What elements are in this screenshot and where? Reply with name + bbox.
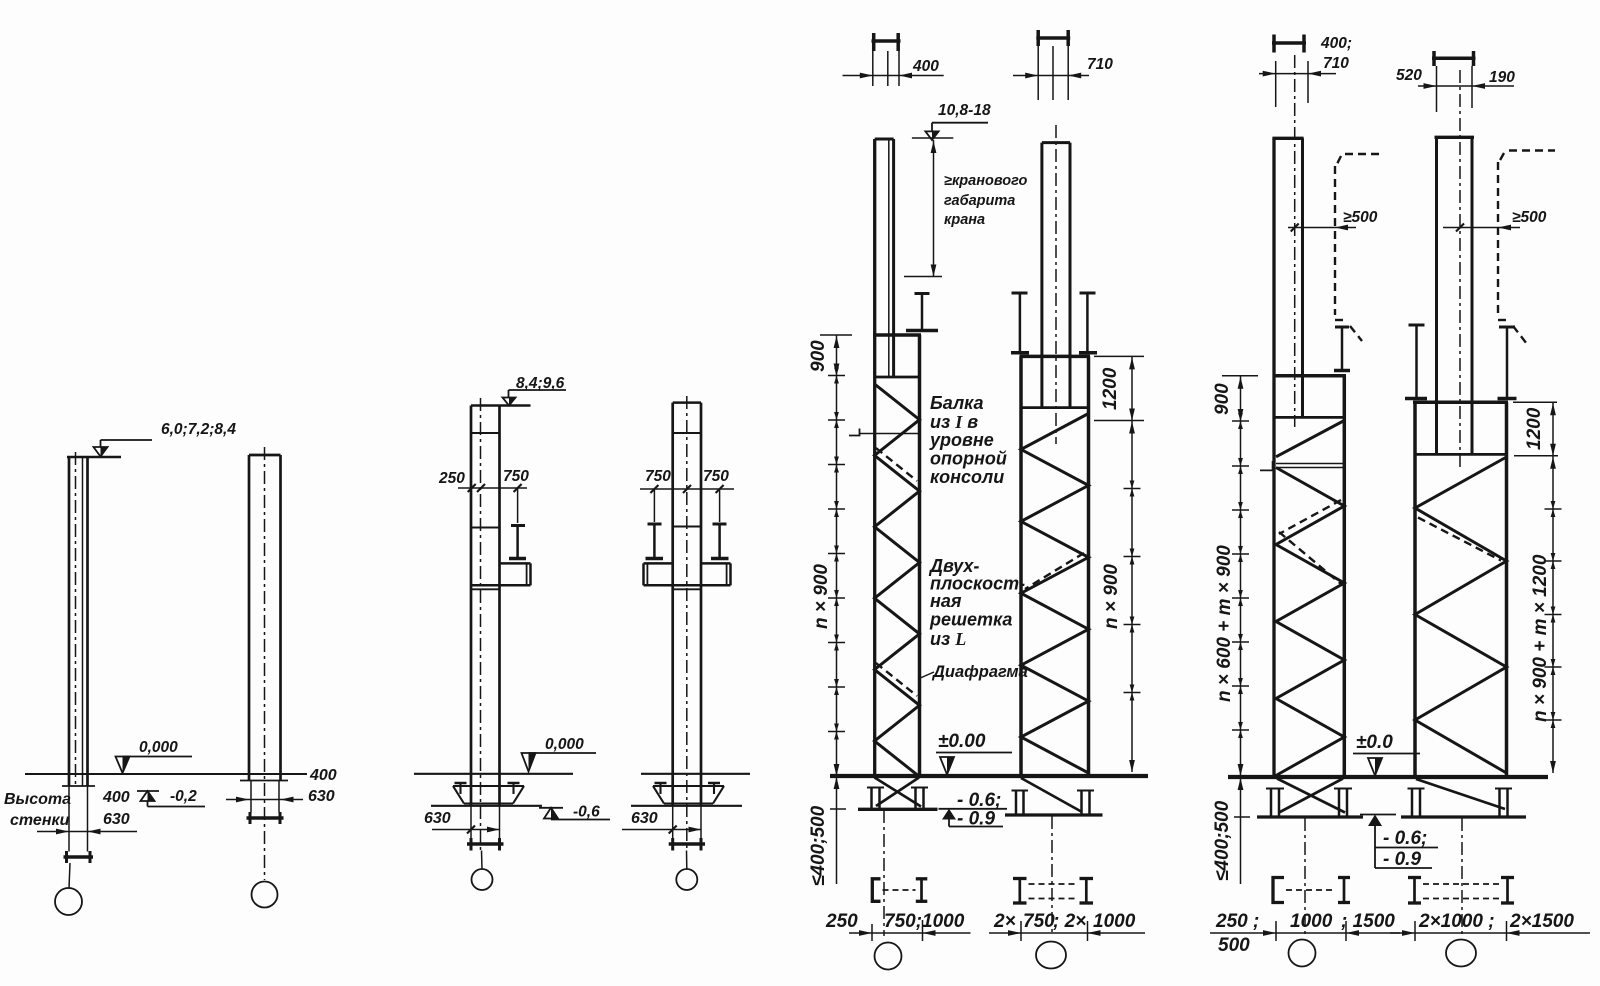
svg-text:≥500: ≥500 bbox=[1512, 209, 1547, 226]
svg-text:n × 900: n × 900 bbox=[1101, 564, 1122, 629]
svg-text:ная: ная bbox=[930, 591, 962, 611]
svg-text:750: 750 bbox=[1023, 911, 1055, 932]
svg-text:1000: 1000 bbox=[1290, 911, 1333, 932]
svg-text:250: 250 bbox=[825, 911, 858, 932]
svg-text:710: 710 bbox=[1087, 56, 1113, 73]
svg-text:из I в: из I в bbox=[930, 412, 978, 432]
svg-text:630: 630 bbox=[308, 788, 335, 805]
svg-text:из L: из L bbox=[930, 629, 966, 649]
svg-text:±0.00: ±0.00 bbox=[938, 731, 986, 752]
svg-text:Диафрагма: Диафрагма bbox=[931, 663, 1028, 681]
svg-text:400: 400 bbox=[309, 767, 337, 784]
svg-text:0,000: 0,000 bbox=[139, 739, 178, 756]
svg-text:750: 750 bbox=[503, 468, 529, 485]
svg-text:710: 710 bbox=[1323, 55, 1349, 72]
svg-text:-0,2: -0,2 bbox=[170, 788, 197, 805]
svg-text:8,4;9,6: 8,4;9,6 bbox=[516, 375, 565, 392]
svg-text:Высота: Высота bbox=[4, 791, 71, 808]
svg-text:6,0;7,2;8,4: 6,0;7,2;8,4 bbox=[161, 421, 236, 438]
svg-text:±0.0: ±0.0 bbox=[1356, 732, 1393, 753]
svg-text:n × 900: n × 900 bbox=[811, 564, 832, 629]
svg-text:750: 750 bbox=[645, 468, 671, 485]
svg-text:190: 190 bbox=[1489, 69, 1515, 86]
svg-text:стенки: стенки bbox=[10, 812, 70, 829]
svg-text:- 0.9: - 0.9 bbox=[1383, 849, 1421, 870]
svg-text:750;1000: 750;1000 bbox=[884, 911, 965, 932]
svg-text:n × 900 + m × 1200: n × 900 + m × 1200 bbox=[1530, 554, 1551, 722]
svg-text:520: 520 bbox=[1396, 67, 1422, 84]
svg-text:630: 630 bbox=[103, 811, 130, 828]
svg-text:габарита: габарита bbox=[944, 193, 1015, 209]
svg-text:n × 600 + m × 900: n × 600 + m × 900 bbox=[1214, 545, 1235, 702]
svg-text:; 1500: ; 1500 bbox=[1341, 911, 1395, 932]
svg-text:250: 250 bbox=[438, 470, 465, 487]
svg-text:400: 400 bbox=[912, 58, 939, 75]
svg-text:≥500: ≥500 bbox=[1343, 209, 1378, 226]
svg-text:консоли: консоли bbox=[930, 467, 1004, 487]
svg-text:≤400;500: ≤400;500 bbox=[808, 805, 829, 886]
svg-text:2×1500: 2×1500 bbox=[1509, 911, 1574, 932]
svg-text:1200: 1200 bbox=[1524, 407, 1545, 450]
svg-text:≤400;500: ≤400;500 bbox=[1212, 800, 1233, 881]
svg-text:900: 900 bbox=[808, 340, 829, 372]
svg-text:400: 400 bbox=[102, 789, 130, 806]
svg-text:10,8-18: 10,8-18 bbox=[938, 102, 991, 119]
svg-text:1000: 1000 bbox=[1093, 911, 1136, 932]
svg-text:750: 750 bbox=[703, 468, 729, 485]
svg-text:≥кранового: ≥кранового bbox=[944, 173, 1027, 189]
svg-text:2×: 2× bbox=[993, 911, 1016, 932]
svg-text:опорной: опорной bbox=[930, 449, 1007, 469]
svg-text:900: 900 bbox=[1212, 383, 1233, 415]
svg-text:630: 630 bbox=[631, 810, 658, 827]
svg-text:решетка: решетка bbox=[929, 610, 1012, 630]
svg-text:; 2×: ; 2× bbox=[1053, 911, 1086, 932]
svg-text:- 0.9: - 0.9 bbox=[957, 809, 995, 830]
svg-text:0,000: 0,000 bbox=[545, 736, 584, 753]
svg-text:400;: 400; bbox=[1320, 35, 1352, 52]
svg-text:630: 630 bbox=[424, 810, 451, 827]
svg-text:уровне: уровне bbox=[929, 430, 994, 450]
svg-text:500: 500 bbox=[1218, 935, 1250, 956]
svg-text:2×1000 ;: 2×1000 ; bbox=[1418, 911, 1495, 932]
svg-text:-0,6: -0,6 bbox=[573, 804, 600, 821]
svg-text:250 ;: 250 ; bbox=[1215, 911, 1259, 932]
svg-text:1200: 1200 bbox=[1100, 367, 1121, 410]
svg-text:Балка: Балка bbox=[930, 393, 984, 413]
svg-text:- 0.6;: - 0.6; bbox=[1383, 828, 1427, 849]
svg-text:крана: крана bbox=[944, 212, 985, 228]
